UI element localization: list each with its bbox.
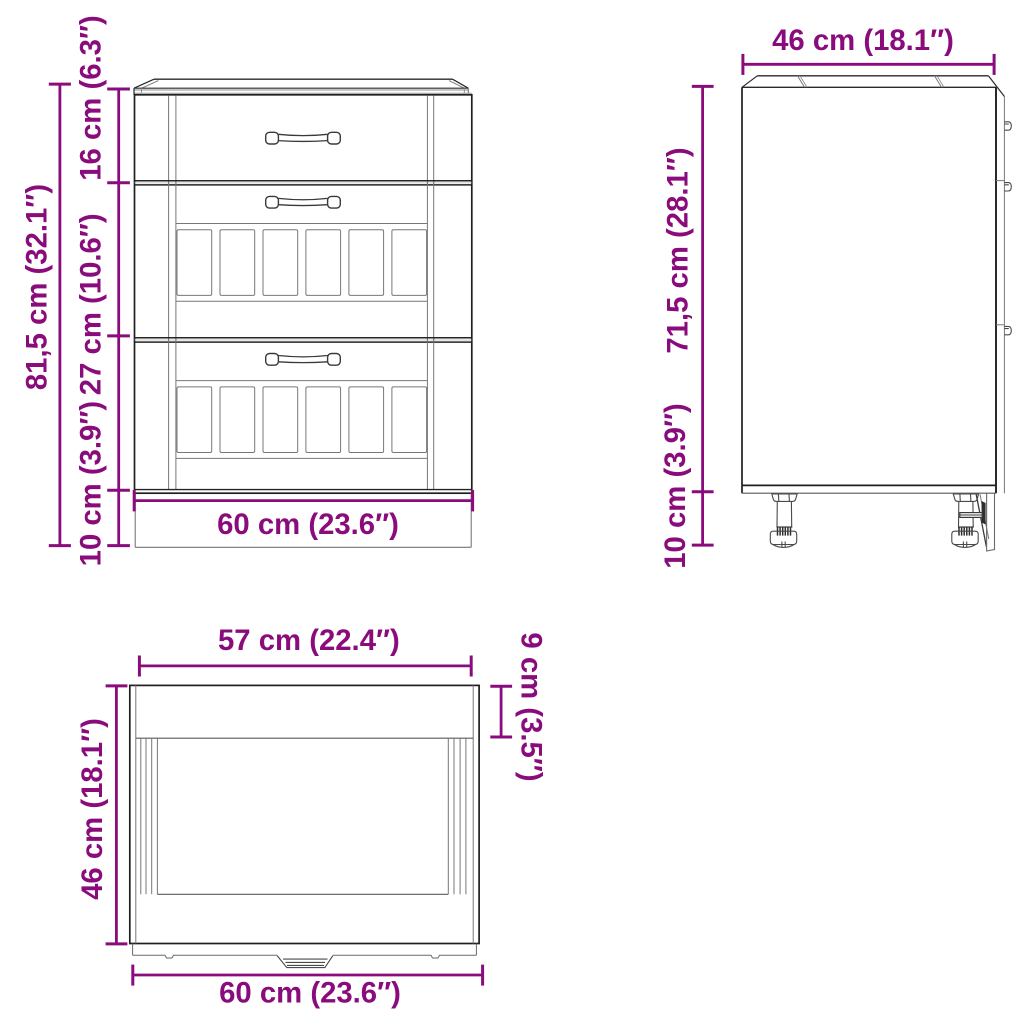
svg-text:71,5 cm (28.1″): 71,5 cm (28.1″) — [662, 147, 695, 353]
svg-text:57 cm (22.4″): 57 cm (22.4″) — [218, 624, 400, 657]
svg-text:81,5 cm (32.1″): 81,5 cm (32.1″) — [21, 184, 54, 390]
svg-text:46 cm (18.1″): 46 cm (18.1″) — [772, 24, 954, 57]
svg-text:10 cm (3.9″): 10 cm (3.9″) — [659, 403, 692, 568]
svg-text:60 cm (23.6″): 60 cm (23.6″) — [219, 977, 401, 1010]
svg-text:27 cm (10.6″): 27 cm (10.6″) — [75, 213, 108, 395]
svg-text:9 cm (3.5″): 9 cm (3.5″) — [515, 632, 548, 781]
svg-text:16 cm (6.3″): 16 cm (6.3″) — [75, 15, 108, 180]
svg-text:10 cm (3.9″): 10 cm (3.9″) — [75, 401, 108, 566]
svg-text:46 cm (18.1″): 46 cm (18.1″) — [76, 718, 109, 900]
svg-text:60 cm (23.6″): 60 cm (23.6″) — [217, 508, 399, 541]
